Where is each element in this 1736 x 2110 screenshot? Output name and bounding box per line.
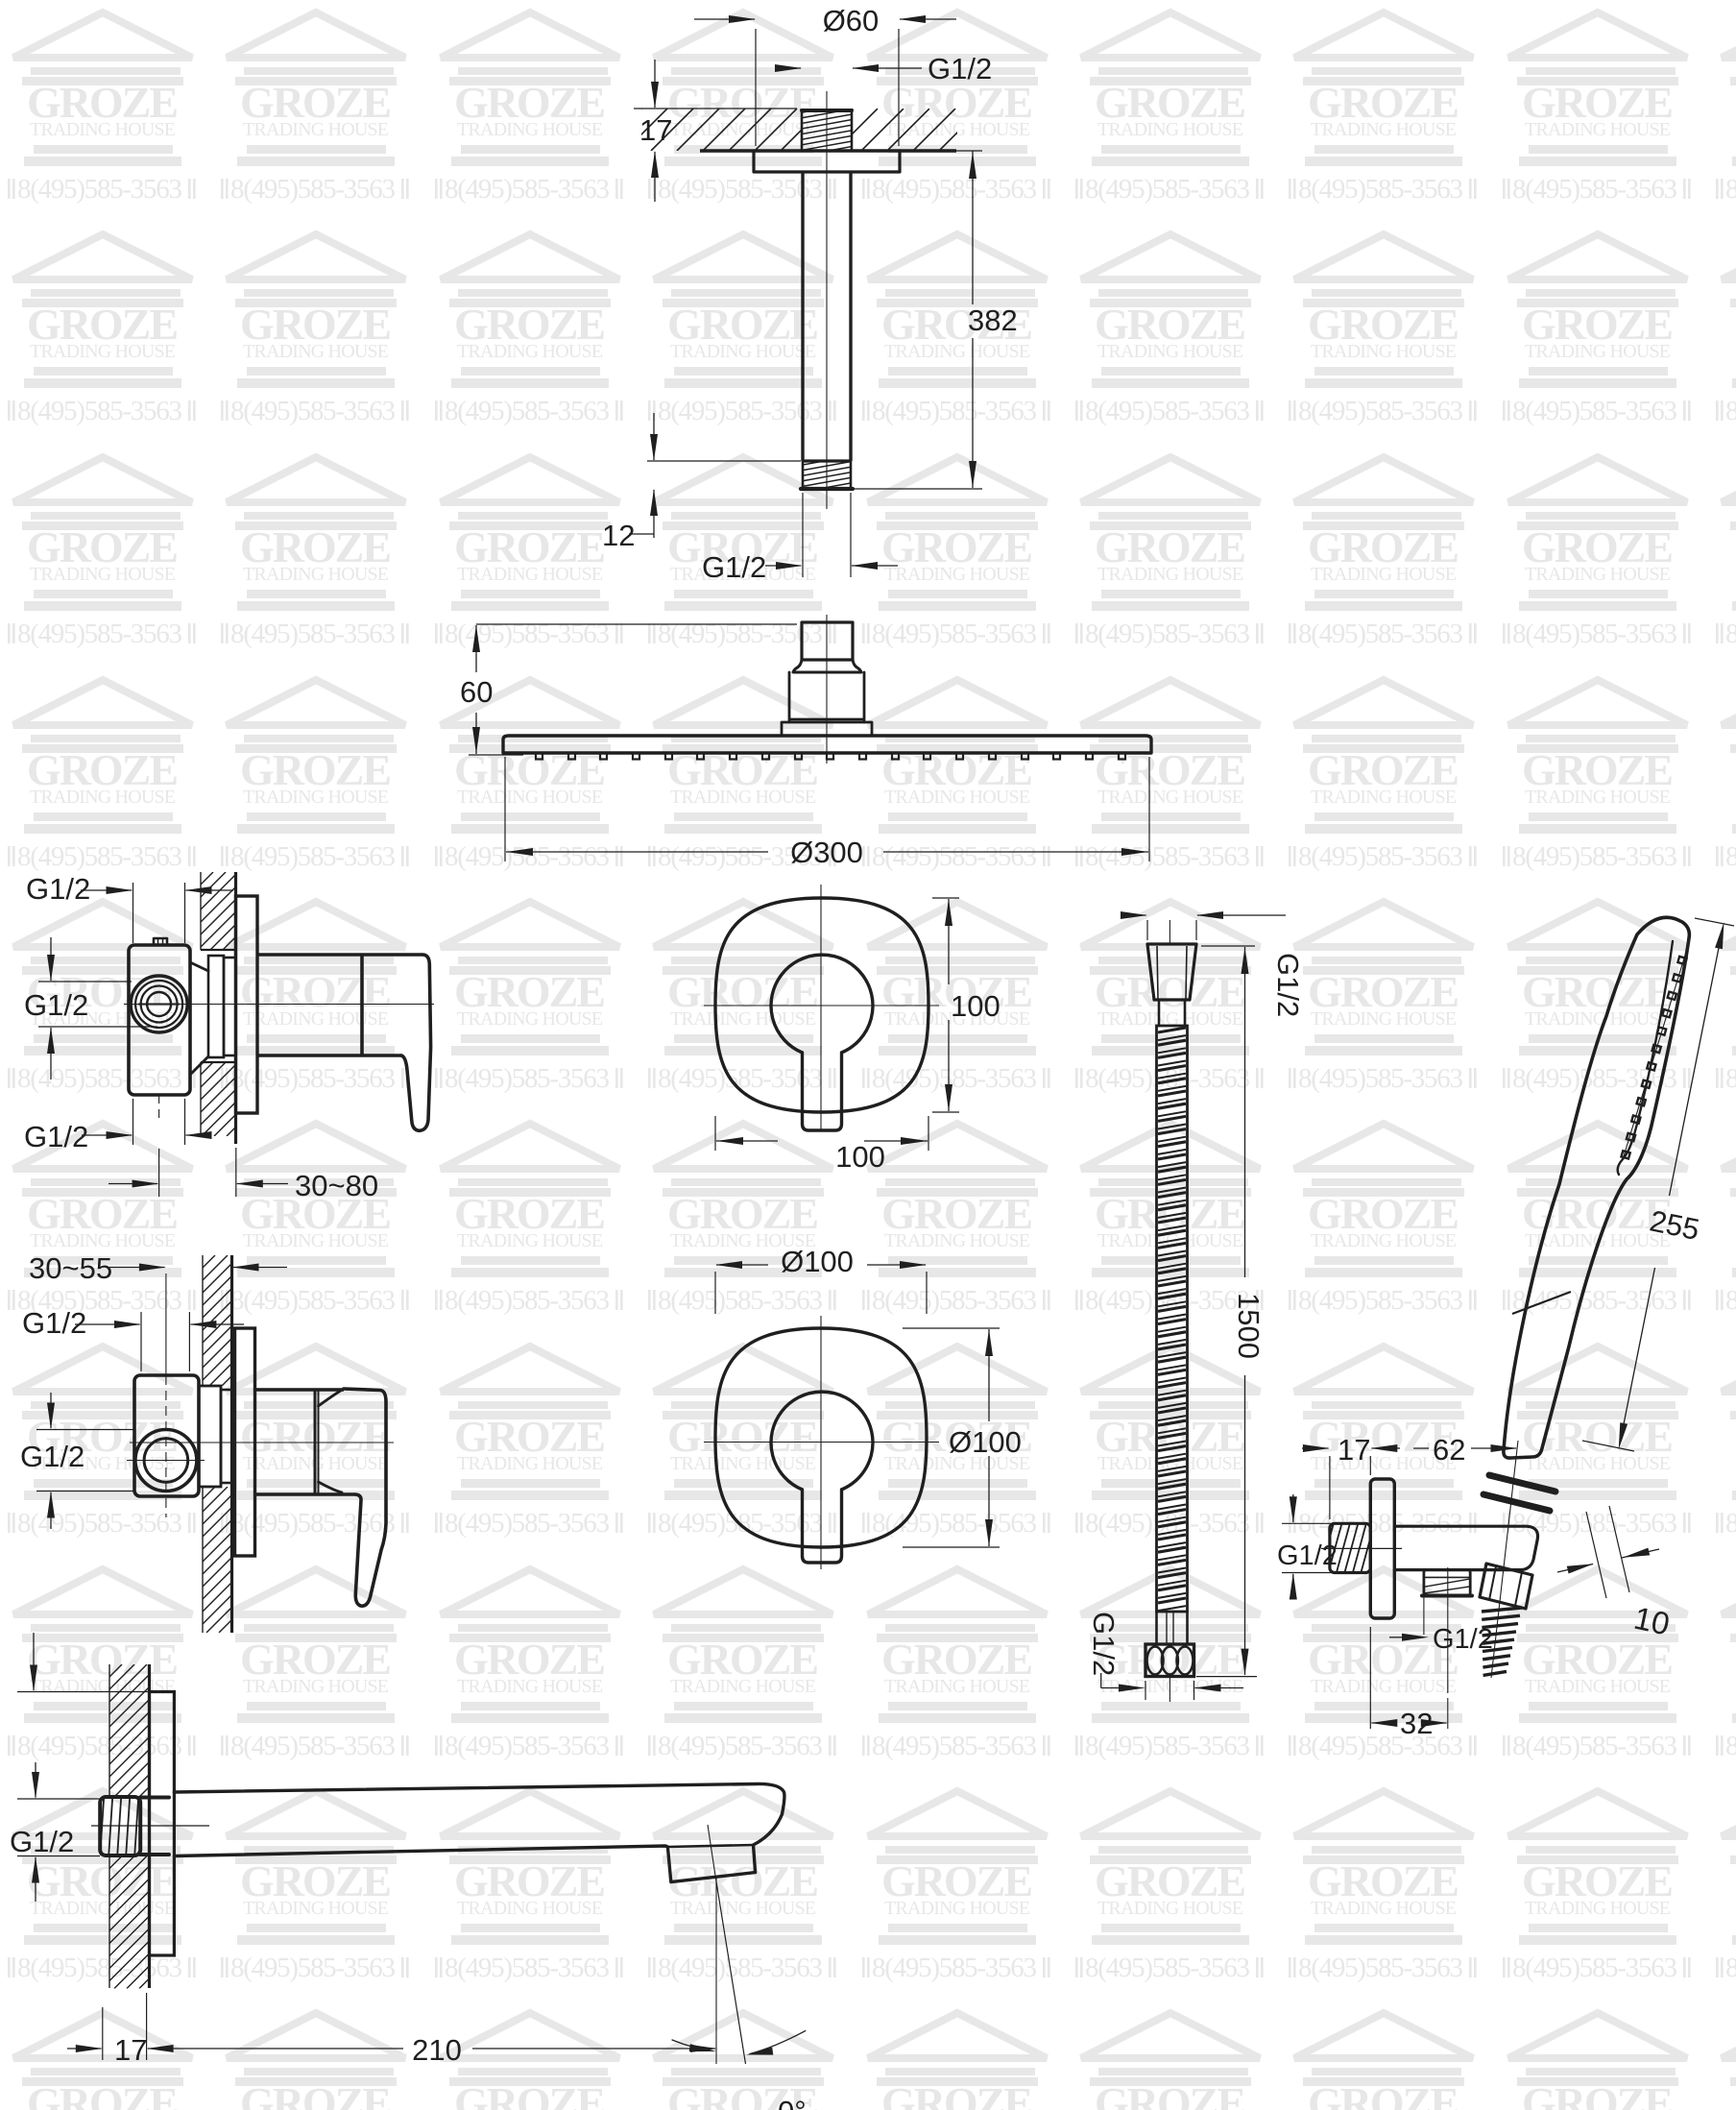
svg-text:G1/2: G1/2 [928, 52, 992, 85]
svg-text:30~55: 30~55 [29, 1251, 112, 1285]
svg-text:100: 100 [951, 989, 1001, 1023]
svg-text:17: 17 [114, 2033, 147, 2067]
svg-text:10: 10 [1631, 1600, 1674, 1642]
svg-text:G1/2: G1/2 [702, 550, 766, 584]
svg-text:G1/2: G1/2 [24, 988, 88, 1022]
svg-text:17: 17 [639, 113, 672, 147]
svg-text:Ø100: Ø100 [949, 1425, 1022, 1459]
svg-text:G1/2: G1/2 [22, 1306, 86, 1340]
svg-text:G1/2: G1/2 [20, 1440, 84, 1473]
svg-text:32: 32 [1400, 1707, 1433, 1740]
svg-text:G1/2: G1/2 [1087, 1612, 1121, 1676]
svg-text:G1/2: G1/2 [1271, 953, 1305, 1017]
svg-text:G1/2: G1/2 [24, 1120, 88, 1153]
svg-text:62: 62 [1433, 1433, 1465, 1467]
svg-text:12: 12 [602, 519, 635, 552]
svg-text:Ø60: Ø60 [823, 4, 880, 37]
svg-text:0°: 0° [778, 2095, 807, 2110]
svg-text:60: 60 [460, 675, 493, 709]
svg-text:G1/2: G1/2 [26, 872, 90, 906]
svg-text:210: 210 [412, 2033, 462, 2067]
svg-text:100: 100 [835, 1140, 885, 1174]
svg-text:G1/2: G1/2 [1433, 1624, 1493, 1655]
svg-text:G1/2: G1/2 [1277, 1540, 1338, 1571]
svg-text:G1/2: G1/2 [10, 1825, 74, 1858]
svg-text:382: 382 [968, 303, 1018, 337]
svg-text:Ø100: Ø100 [781, 1245, 854, 1278]
svg-text:17: 17 [1338, 1433, 1370, 1467]
svg-text:30~80: 30~80 [295, 1169, 378, 1202]
svg-text:Ø300: Ø300 [790, 836, 863, 869]
svg-text:1500: 1500 [1232, 1293, 1266, 1359]
